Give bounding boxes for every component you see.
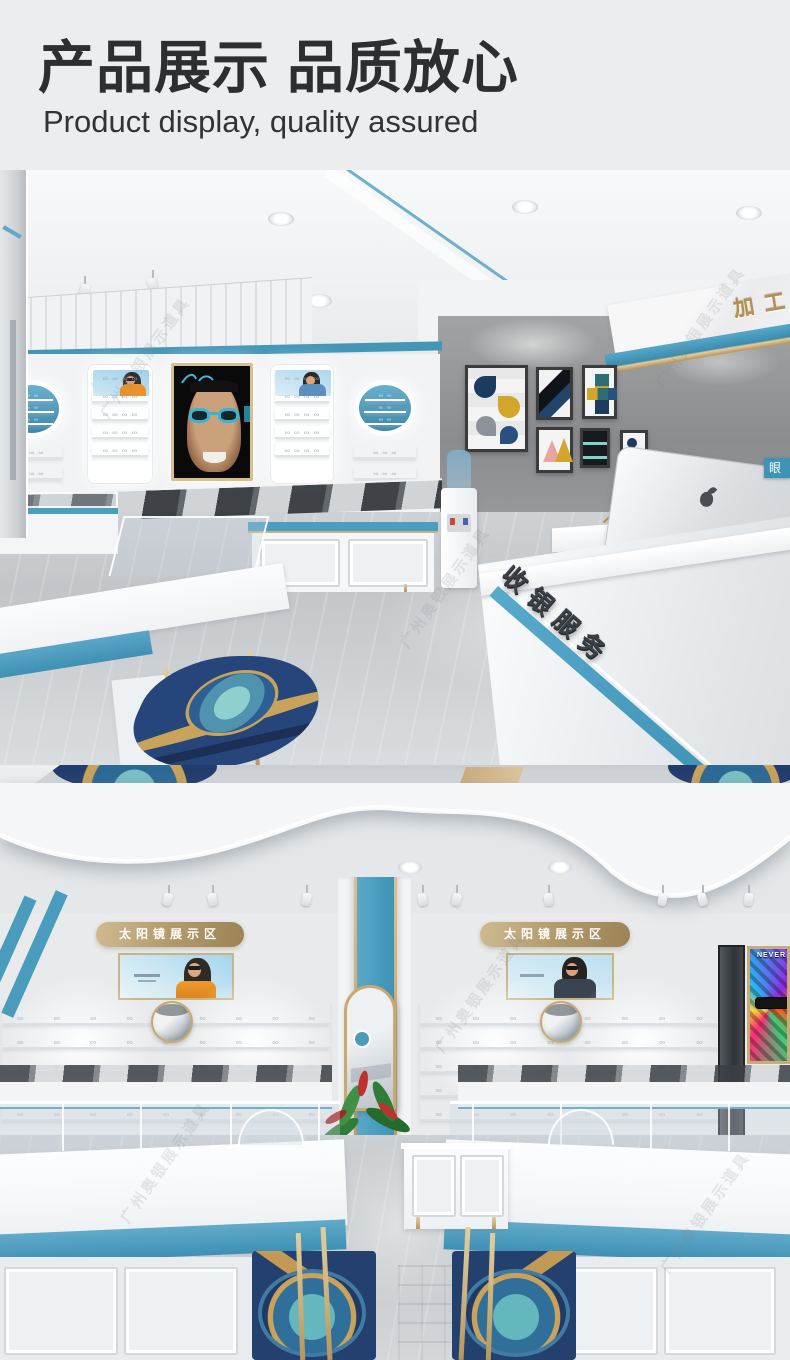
poster-script-logo bbox=[180, 371, 216, 387]
glasses-icon: ∞ bbox=[272, 1038, 278, 1046]
poster-woman-sunglasses-icon bbox=[188, 966, 201, 970]
round-shelf: ∞∞ bbox=[364, 405, 406, 413]
cabinet-door bbox=[412, 1155, 456, 1217]
glasses-icon: ∞ bbox=[383, 472, 388, 478]
glasses-icon: ∞ bbox=[622, 1038, 628, 1046]
glasses-icon: ∞ bbox=[314, 429, 320, 436]
sunglasses-zone-sign-left: 太阳镜展示区 bbox=[96, 922, 244, 947]
panel-molding bbox=[124, 1267, 238, 1355]
art-frame-geometric bbox=[465, 365, 528, 452]
glasses-icon: ∞ bbox=[34, 418, 38, 423]
glasses-icon: ∞ bbox=[122, 429, 128, 436]
glasses-icon: ∞ bbox=[696, 1014, 702, 1022]
cabinet-leg bbox=[492, 1217, 496, 1229]
glasses-icon: ∞ bbox=[272, 1014, 278, 1022]
rug-teal-circle bbox=[258, 1269, 366, 1357]
track-spotlight-icon bbox=[301, 892, 312, 906]
mini-poster-man bbox=[275, 370, 331, 396]
mirror-dark-reflection bbox=[10, 320, 16, 480]
table-glass-railing bbox=[109, 516, 270, 576]
glasses-icon: ∞ bbox=[122, 411, 128, 418]
poster-sunglasses-lens-right bbox=[218, 408, 239, 423]
glass-post bbox=[140, 1103, 142, 1151]
glasses-icon: ∞ bbox=[304, 429, 310, 436]
cold-tap bbox=[463, 518, 468, 525]
recessed-light bbox=[736, 206, 762, 220]
glasses-icon: ∞ bbox=[199, 1038, 205, 1046]
glasses-icon: ∞ bbox=[510, 1038, 516, 1046]
water-bottle bbox=[447, 450, 471, 490]
glasses-icon: ∞ bbox=[387, 394, 391, 399]
pop-art-poster: NEVER bbox=[747, 946, 790, 1064]
glasses-icon: ∞ bbox=[435, 1062, 441, 1070]
glasses-icon: ∞ bbox=[132, 447, 138, 454]
glasses-icon: ∞ bbox=[236, 1038, 242, 1046]
cabinet-door bbox=[460, 1155, 504, 1217]
glasses-icon: ∞ bbox=[435, 1014, 441, 1022]
glasses-icon: ∞ bbox=[126, 1014, 132, 1022]
panel-molding bbox=[664, 1267, 776, 1355]
glasses-icon: ∞ bbox=[435, 1110, 441, 1118]
glasses-icon: ∞ bbox=[309, 1038, 315, 1046]
lightbox-poster-man bbox=[171, 363, 253, 481]
hot-tap bbox=[450, 518, 455, 525]
glasses-icon: ∞ bbox=[103, 447, 109, 454]
glasses-icon: ∞ bbox=[659, 1038, 665, 1046]
glasses-icon: ∞ bbox=[374, 451, 379, 457]
zone-sign-label: 太阳镜展示区 bbox=[119, 927, 221, 941]
glasses-icon: ∞ bbox=[435, 1086, 441, 1094]
recessed-light bbox=[548, 861, 572, 874]
glasses-icon: ∞ bbox=[17, 1038, 23, 1046]
glasses-icon: ∞ bbox=[294, 375, 300, 382]
store-photo-cashier-area: 加工 ∞∞ ∞∞ ∞∞ ∞∞ ∞∞ ∞∞ ∞∞∞∞ ∞∞∞∞ ∞∞∞∞ ∞∞∞∞… bbox=[0, 170, 790, 765]
round-display-right: ∞∞ ∞∞ ∞∞ bbox=[354, 380, 416, 436]
low-shelf-right: ∞∞∞ ∞∞∞ bbox=[354, 446, 416, 480]
glasses-icon: ∞ bbox=[199, 1014, 205, 1022]
header-banner: 产品展示 品质放心 Product display, quality assur… bbox=[0, 0, 790, 170]
glasses-icon: ∞ bbox=[294, 447, 300, 454]
glasses-icon: ∞ bbox=[103, 375, 109, 382]
glasses-icon: ∞ bbox=[584, 1014, 590, 1022]
glasses-icon: ∞ bbox=[294, 411, 300, 418]
glasses-icon: ∞ bbox=[39, 451, 44, 457]
mirror-teal-reflection bbox=[2, 225, 21, 238]
glasses-icon: ∞ bbox=[304, 447, 310, 454]
round-pattern-rug-left bbox=[252, 1251, 376, 1360]
art-circle-navy bbox=[474, 376, 496, 398]
pop-art-sunglasses-icon bbox=[755, 997, 789, 1009]
mirror-dark-arc bbox=[544, 1004, 578, 1016]
poster-side-text-mark bbox=[244, 406, 250, 422]
track-spotlight-icon bbox=[207, 892, 219, 907]
glasses-icon: ∞ bbox=[659, 1014, 665, 1022]
glasses-icon: ∞ bbox=[132, 429, 138, 436]
poster-sunglasses-bridge bbox=[210, 412, 219, 415]
glasses-icon: ∞ bbox=[379, 394, 383, 399]
art-circle-mustard bbox=[498, 396, 520, 418]
glasses-shelf: ∞∞∞∞ bbox=[92, 443, 148, 457]
glasses-icon: ∞ bbox=[304, 411, 310, 418]
glasses-icon: ∞ bbox=[387, 418, 391, 423]
page-subtitle: Product display, quality assured bbox=[43, 104, 743, 140]
plant-flower-red bbox=[356, 1070, 369, 1097]
art-frame-typographic bbox=[536, 367, 573, 420]
round-shelf: ∞∞ bbox=[365, 393, 405, 401]
recessed-light bbox=[398, 861, 422, 874]
cabinet-leg bbox=[404, 584, 407, 592]
rug-teal-circle bbox=[462, 1269, 570, 1357]
promo-page: { "header": { "title": "产品展示 品质放心", "sub… bbox=[0, 0, 790, 1360]
glasses-icon: ∞ bbox=[309, 1014, 315, 1022]
cabinet-teal-strip bbox=[248, 522, 438, 531]
poster-man-sunglasses-icon bbox=[566, 966, 578, 970]
glasses-icon: ∞ bbox=[53, 1014, 59, 1022]
round-pattern-rug-right bbox=[452, 1251, 576, 1360]
track-spotlight-icon bbox=[743, 892, 754, 906]
glasses-icon: ∞ bbox=[285, 429, 291, 436]
glass-post bbox=[728, 1103, 730, 1151]
glasses-shelf: ∞∞∞∞ bbox=[275, 425, 329, 439]
glasses-icon: ∞ bbox=[285, 375, 291, 382]
glasses-icon: ∞ bbox=[696, 1038, 702, 1046]
glasses-icon: ∞ bbox=[473, 1038, 479, 1046]
bg-dark-glass-strip bbox=[0, 1065, 332, 1082]
glasses-icon: ∞ bbox=[285, 393, 291, 400]
track-spotlight-icon bbox=[451, 892, 463, 907]
cabinet-gold-line bbox=[248, 531, 438, 533]
glasses-icon: ∞ bbox=[122, 447, 128, 454]
glasses-icon: ∞ bbox=[392, 472, 397, 478]
poster-smile bbox=[203, 452, 226, 463]
glasses-icon: ∞ bbox=[112, 429, 118, 436]
art-frame-type-teal bbox=[580, 428, 610, 468]
glasses-icon: ∞ bbox=[236, 1014, 242, 1022]
glasses-icon: ∞ bbox=[314, 447, 320, 454]
store-photo-sunglasses-zone: 太阳镜展示区 太阳镜展示区 ∞∞∞∞∞∞∞∞∞ ∞∞∞∞∞∞∞∞∞ ∞∞∞∞∞∞… bbox=[0, 765, 790, 1360]
glasses-icon: ∞ bbox=[30, 472, 35, 478]
glasses-icon: ∞ bbox=[510, 1014, 516, 1022]
glasses-icon: ∞ bbox=[383, 451, 388, 457]
glasses-icon: ∞ bbox=[294, 429, 300, 436]
glasses-icon: ∞ bbox=[17, 1014, 23, 1022]
art-circle-gray bbox=[476, 416, 496, 436]
glasses-icon: ∞ bbox=[103, 429, 109, 436]
cabinet-counter-top bbox=[401, 1143, 511, 1149]
track-spotlight-icon bbox=[417, 892, 428, 906]
glasses-icon: ∞ bbox=[126, 1038, 132, 1046]
left-mirror-strip bbox=[0, 170, 28, 538]
recessed-light bbox=[268, 212, 294, 226]
round-shelf: ∞∞ bbox=[365, 417, 405, 425]
glasses-icon: ∞ bbox=[39, 472, 44, 478]
glasses-icon: ∞ bbox=[294, 393, 300, 400]
art-triangle-mustard bbox=[555, 438, 573, 462]
glasses-icon: ∞ bbox=[379, 406, 383, 411]
glasses-icon: ∞ bbox=[622, 1014, 628, 1022]
art-circle-navy-2 bbox=[500, 426, 518, 444]
track-spotlight-icon bbox=[657, 892, 669, 907]
glasses-icon: ∞ bbox=[132, 411, 138, 418]
bg-dark-glass-strip bbox=[458, 1065, 790, 1082]
glasses-icon: ∞ bbox=[387, 406, 391, 411]
recessed-light bbox=[512, 200, 538, 214]
glasses-icon: ∞ bbox=[132, 393, 138, 400]
center-cabinet bbox=[404, 1143, 508, 1229]
glasses-icon: ∞ bbox=[314, 411, 320, 418]
glasses-icon: ∞ bbox=[374, 472, 379, 478]
glasses-icon: ∞ bbox=[584, 1038, 590, 1046]
glasses-icon: ∞ bbox=[112, 447, 118, 454]
glasses-icon: ∞ bbox=[30, 451, 35, 457]
glasses-shelf: ∞∞∞ bbox=[354, 446, 416, 459]
glasses-shelf: ∞∞∞∞ bbox=[275, 407, 329, 421]
cabinet-door bbox=[348, 539, 428, 587]
eyewear-tag-label: 眼 bbox=[764, 458, 781, 478]
glasses-shelf: ∞∞∞ bbox=[354, 467, 416, 480]
glasses-icon: ∞ bbox=[304, 393, 310, 400]
poster-sunglasses-lens-left bbox=[189, 408, 210, 423]
mirror-dark-arc bbox=[155, 1004, 189, 1016]
glasses-icon: ∞ bbox=[90, 1014, 96, 1022]
glasses-icon: ∞ bbox=[90, 1038, 96, 1046]
wall-light-glow bbox=[468, 318, 598, 370]
glasses-icon: ∞ bbox=[314, 375, 320, 382]
track-spotlight-icon bbox=[543, 892, 554, 906]
round-mirror-right bbox=[540, 1001, 582, 1043]
glass-post bbox=[62, 1103, 64, 1151]
art-cross-bar bbox=[587, 388, 617, 400]
table-panel-base bbox=[0, 1257, 258, 1360]
track-spotlight-icon bbox=[161, 892, 173, 907]
round-mirror-left bbox=[151, 1001, 193, 1043]
glasses-icon: ∞ bbox=[392, 451, 397, 457]
eyewear-wall-tag: 眼 bbox=[764, 458, 790, 478]
track-spotlight-icon bbox=[697, 892, 709, 907]
glasses-icon: ∞ bbox=[34, 406, 38, 411]
page-title: 产品展示 品质放心 bbox=[38, 22, 758, 104]
glass-post bbox=[650, 1103, 652, 1151]
glasses-icon: ∞ bbox=[314, 393, 320, 400]
pop-art-word: NEVER bbox=[750, 952, 790, 959]
glasses-icon: ∞ bbox=[53, 1038, 59, 1046]
glasses-shelf: ∞∞∞∞ bbox=[275, 443, 329, 457]
rug-teal-circle bbox=[173, 670, 290, 736]
glasses-icon: ∞ bbox=[285, 411, 291, 418]
mirror-reflection-teal-circle bbox=[353, 1030, 371, 1048]
art-frame-cross-collage bbox=[582, 365, 617, 419]
shelf-panel-right: ∞∞∞∞ ∞∞∞∞ ∞∞∞∞ ∞∞∞∞ ∞∞∞∞ bbox=[270, 364, 334, 484]
glasses-icon: ∞ bbox=[34, 394, 38, 399]
cabinet-leg bbox=[416, 1217, 420, 1229]
panel-molding bbox=[4, 1267, 118, 1355]
glasses-icon: ∞ bbox=[285, 447, 291, 454]
glasses-shelf: ∞∞∞∞ bbox=[92, 425, 148, 439]
art-frame-triangles bbox=[536, 427, 573, 473]
glasses-icon: ∞ bbox=[304, 375, 310, 382]
glasses-icon: ∞ bbox=[379, 418, 383, 423]
